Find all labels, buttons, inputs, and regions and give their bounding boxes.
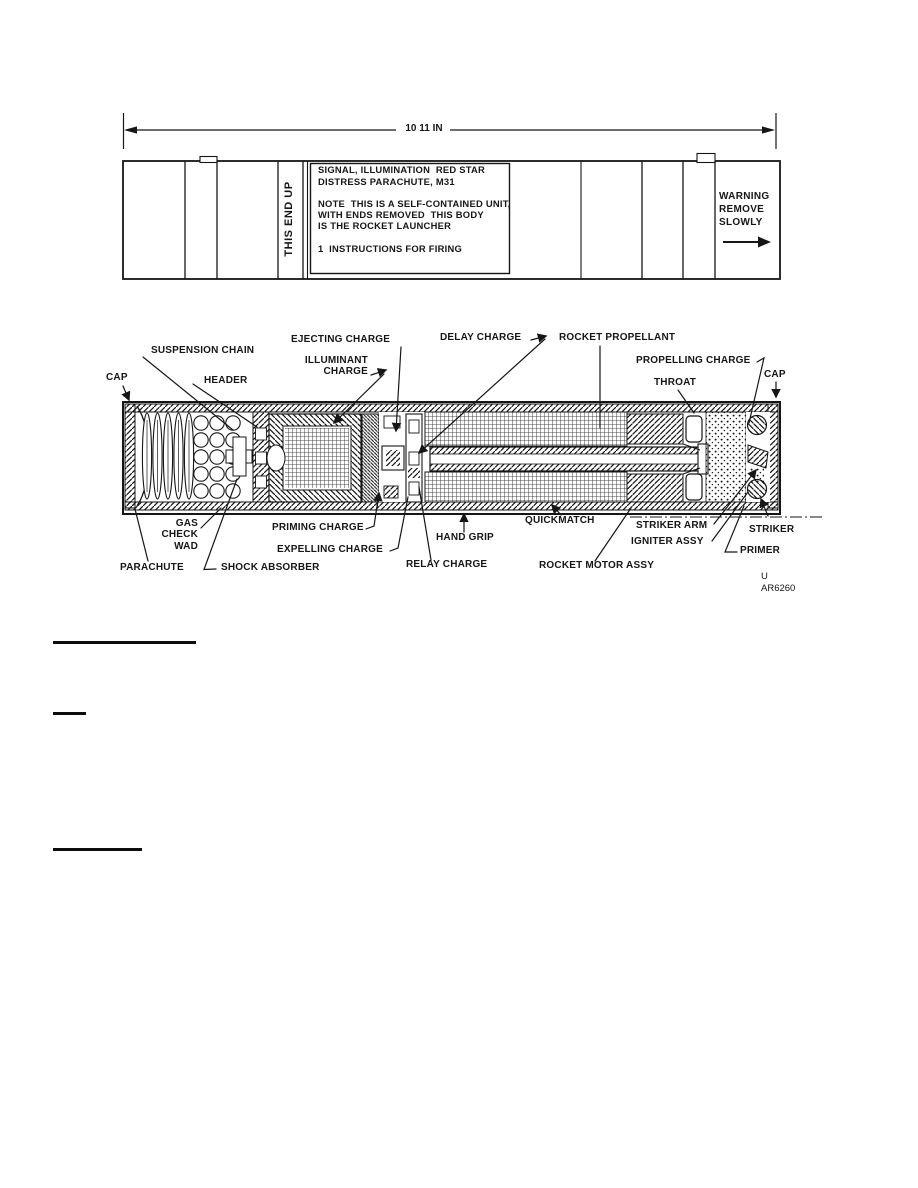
callout-parachute: PARACHUTE (120, 562, 184, 573)
callout-delay-charge: DELAY CHARGE (440, 332, 521, 343)
underline-rule-3 (53, 848, 142, 851)
illuminant-line1: ILLUMINANT (296, 355, 368, 366)
figure-ref-line2: AR6260 (761, 583, 795, 595)
dimension-left-arrow-icon (124, 126, 137, 133)
tube-note-line3: IS THE ROCKET LAUNCHER (318, 220, 451, 231)
callout-propelling-charge: PROPELLING CHARGE (636, 355, 751, 366)
callout-striker-arm: STRIKER ARM (636, 520, 707, 531)
callout-cap-left: CAP (106, 372, 128, 383)
dimension-label: 10 11 IN (396, 123, 452, 134)
warning-label: WARNING REMOVE SLOWLY (719, 190, 769, 229)
callout-quickmatch: QUICKMATCH (525, 515, 595, 526)
callout-expelling-charge: EXPELLING CHARGE (277, 544, 383, 555)
callout-relay-charge: RELAY CHARGE (406, 559, 487, 570)
gas-line1: GAS (156, 518, 198, 529)
manual-page: 10 11 IN THIS END UP SIGNAL, ILLUMINATIO… (0, 0, 918, 1188)
tube-wall-bottom (125, 502, 778, 510)
callout-igniter-assy: IGNITER ASSY (631, 536, 704, 547)
this-end-up-label: THIS END UP (283, 159, 299, 279)
callout-gas-check-wad: GAS CHECK WAD (156, 518, 198, 552)
underline-rule-2 (53, 712, 86, 715)
tube-wall-top (125, 404, 778, 412)
warning-line3: SLOWLY (719, 216, 769, 229)
callout-priming-charge: PRIMING CHARGE (272, 522, 364, 533)
tube-firing-line: 1 INSTRUCTIONS FOR FIRING (318, 243, 462, 254)
propelling-charge-part (706, 412, 746, 502)
callout-primer: PRIMER (740, 545, 780, 556)
dimension-right-arrow-icon (762, 126, 775, 133)
gas-line2: CHECK (156, 529, 198, 540)
cutaway-body (123, 402, 822, 517)
callout-hand-grip: HAND GRIP (436, 532, 494, 543)
gas-line3: WAD (156, 541, 198, 552)
callout-cap-right: CAP (764, 369, 786, 380)
figure-reference: U AR6260 (761, 571, 795, 595)
warning-line1: WARNING (719, 190, 769, 203)
figure-ref-line1: U (761, 571, 795, 583)
tube-note-line2: WITH ENDS REMOVED THIS BODY (318, 209, 484, 220)
callout-rocket-motor-assy: ROCKET MOTOR ASSY (539, 560, 654, 571)
tube-title-line1: SIGNAL, ILLUMINATION RED STAR (318, 164, 485, 175)
callout-ejecting-charge: EJECTING CHARGE (291, 334, 390, 345)
callout-shock-absorber: SHOCK ABSORBER (221, 562, 320, 573)
end-cap-left (125, 404, 135, 508)
warning-line2: REMOVE (719, 203, 769, 216)
callout-suspension-chain: SUSPENSION CHAIN (151, 345, 254, 356)
callout-throat: THROAT (654, 377, 696, 388)
striker-assembly-part (746, 412, 770, 502)
callout-striker: STRIKER (749, 524, 794, 535)
tube-title-line2: DISTRESS PARACHUTE, M31 (318, 176, 455, 187)
shock-absorber-part (362, 414, 379, 502)
parachute-pleats (142, 413, 193, 499)
callout-header: HEADER (204, 375, 247, 386)
tube-note-line1: NOTE THIS IS A SELF-CONTAINED UNIT, (318, 198, 511, 209)
underline-rule-1 (53, 641, 196, 644)
charge-parts-zone (379, 412, 425, 502)
callout-rocket-propellant: ROCKET PROPELLANT (559, 332, 675, 343)
callout-illuminant-charge: ILLUMINANT CHARGE (296, 355, 368, 377)
illuminant-line2: CHARGE (296, 366, 368, 377)
illuminant-charge-part (267, 414, 361, 502)
